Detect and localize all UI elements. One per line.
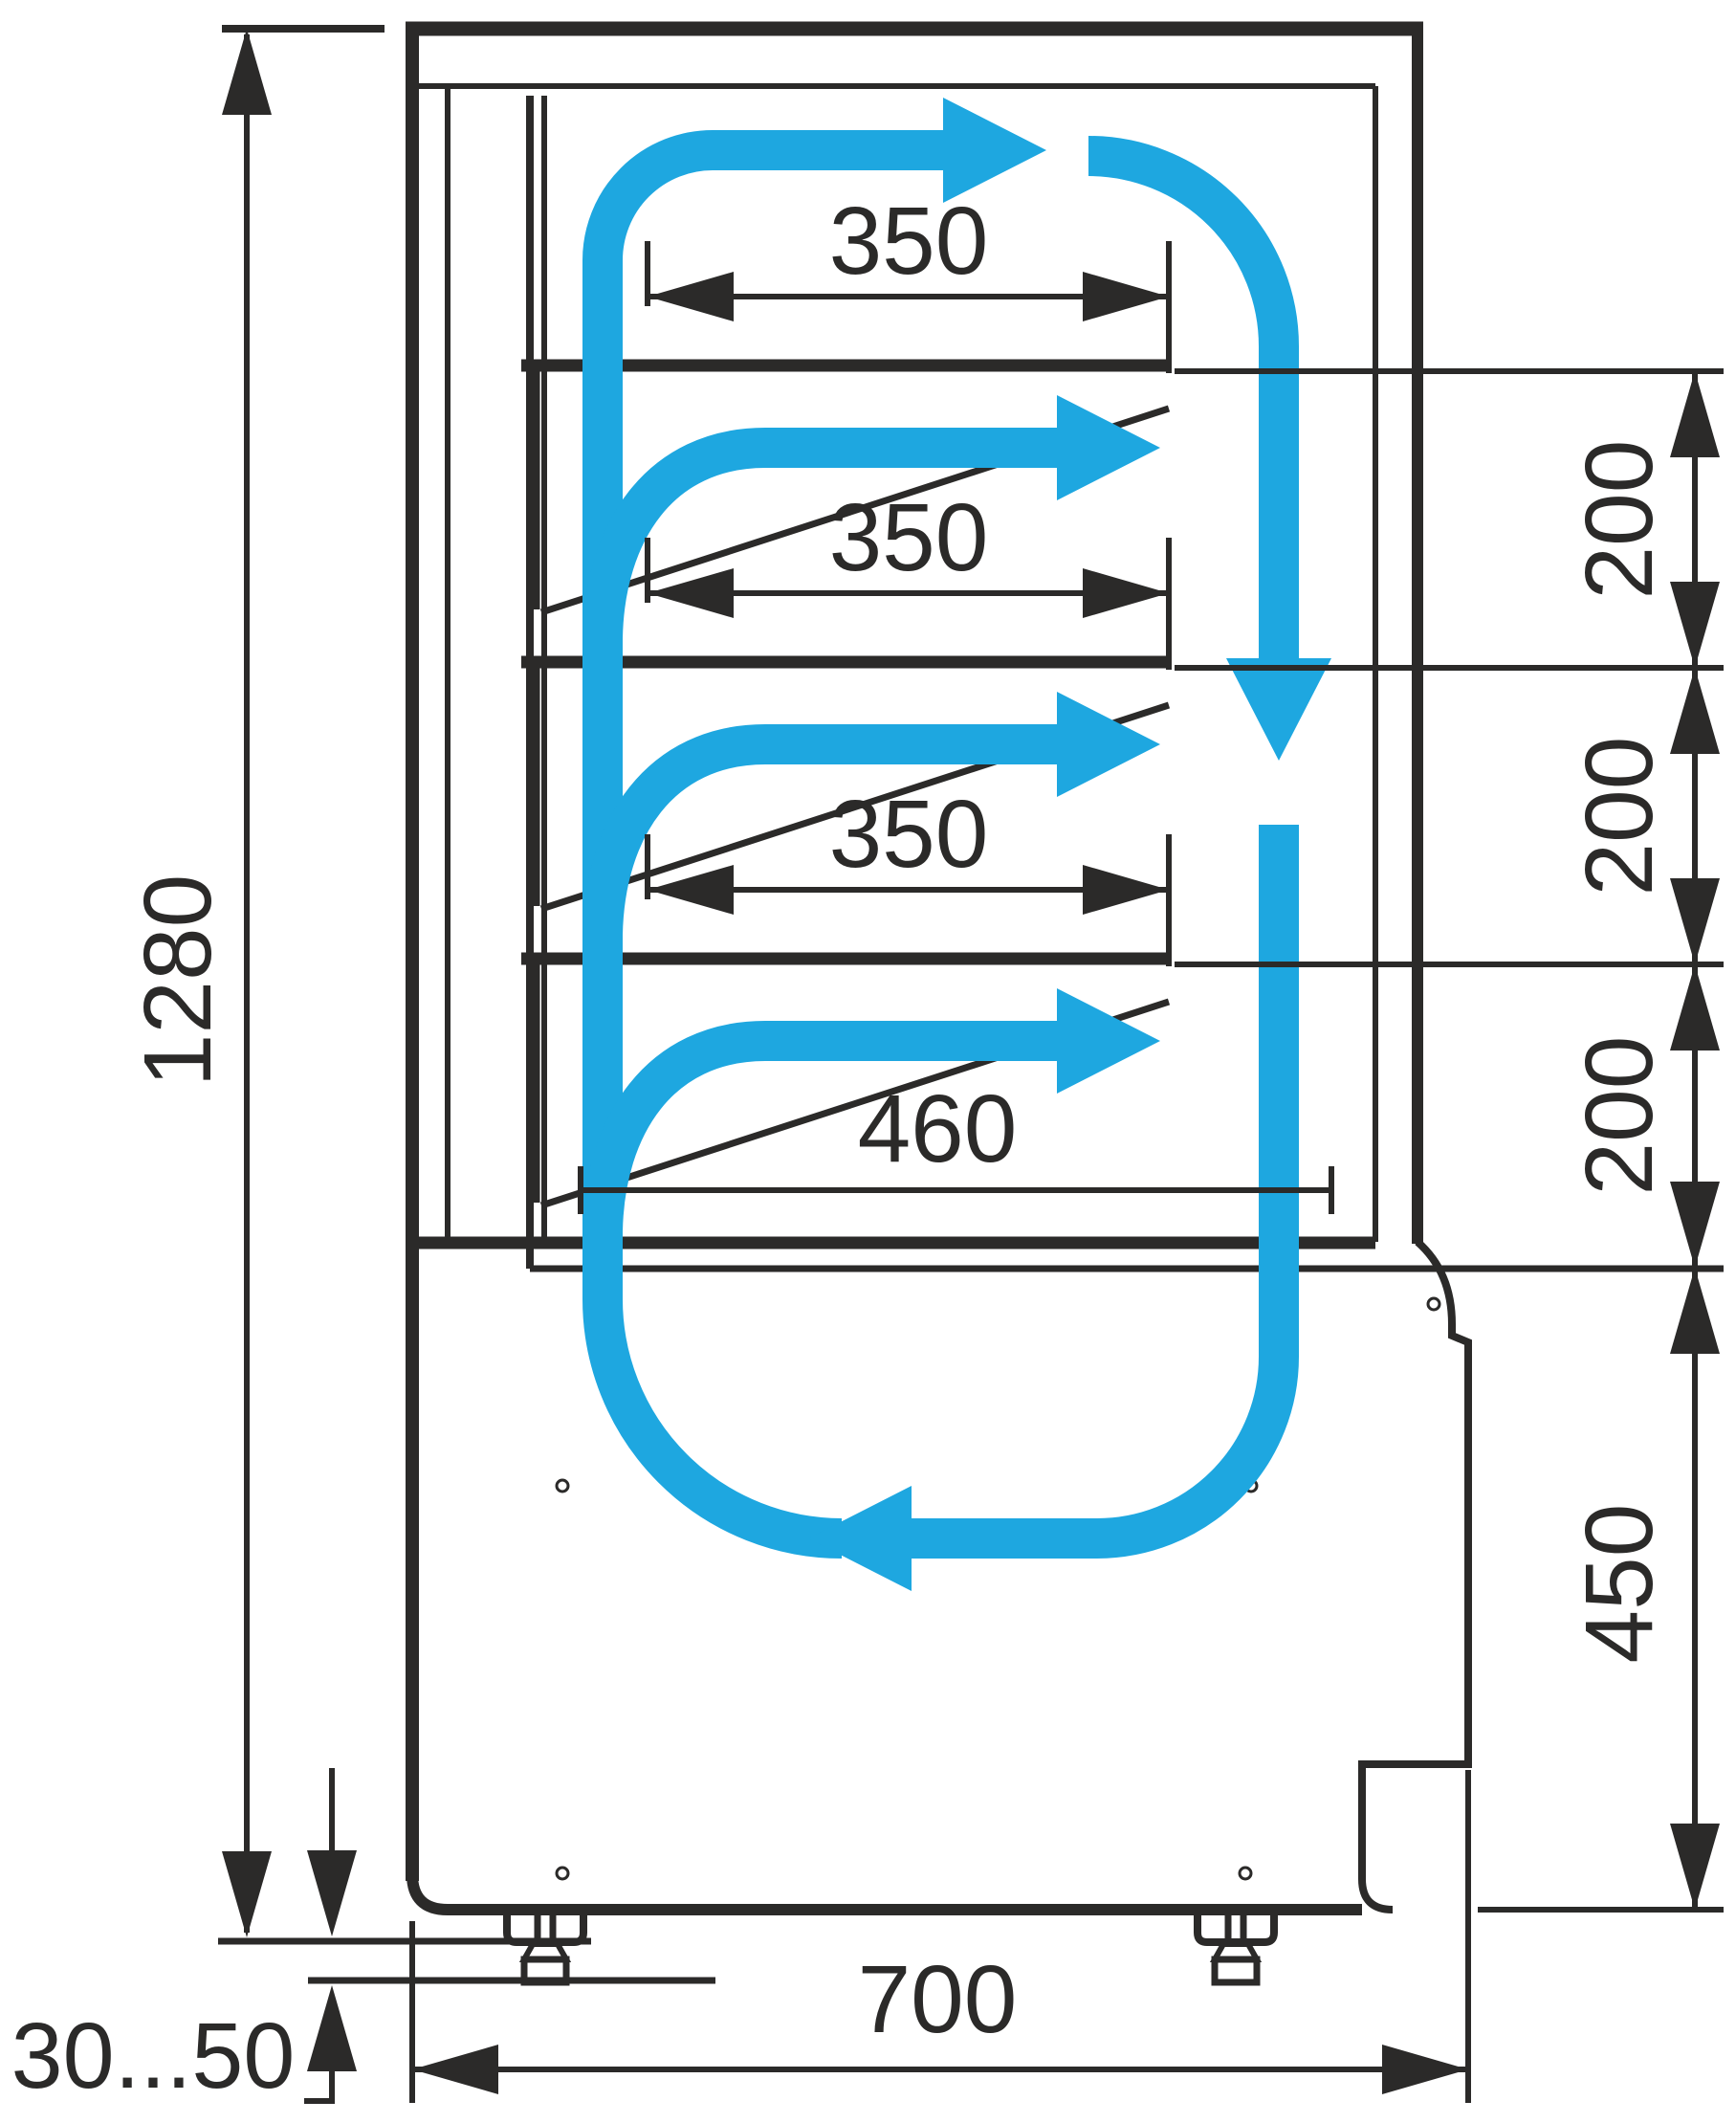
dim-1280-arrow-down-icon bbox=[222, 1851, 272, 1937]
leg-right bbox=[1198, 1910, 1274, 1982]
dim-350-3-label: 350 bbox=[829, 781, 989, 888]
dim-200-1-arrow-down-icon bbox=[1670, 582, 1720, 668]
dim-200-3-label: 200 bbox=[1566, 1036, 1673, 1196]
base-right-outline bbox=[1362, 1242, 1468, 1910]
airflow-arrowhead-branch-3-icon bbox=[1057, 988, 1160, 1094]
dim-depth-700: 700 bbox=[412, 1770, 1468, 2103]
dim-3050-arrow-up-icon bbox=[307, 1985, 357, 2071]
base-screw-hole bbox=[1240, 1868, 1251, 1879]
dim-shelf-350-1: 350 bbox=[648, 188, 1169, 373]
dim-450-arrow-up-icon bbox=[1670, 1268, 1720, 1354]
dim-350-2-arrow-right-icon bbox=[1083, 568, 1169, 618]
dim-deck-460: 460 bbox=[581, 1075, 1331, 1214]
dim-200-3-arrow-down-icon bbox=[1670, 1182, 1720, 1268]
dim-3050-arrow-down-icon bbox=[307, 1850, 357, 1936]
dim-1280-arrow-up-icon bbox=[222, 29, 272, 115]
base-body bbox=[412, 1242, 1468, 1910]
base-screw-hole bbox=[1428, 1298, 1439, 1310]
dim-1280-label: 1280 bbox=[124, 874, 231, 1087]
display-case-diagram: 1280 350 350 350 460 bbox=[0, 0, 1736, 2123]
dim-700-arrow-left-icon bbox=[412, 2045, 498, 2094]
dim-200-1-arrow-up-icon bbox=[1670, 371, 1720, 457]
dim-350-1-arrow-left-icon bbox=[648, 272, 734, 321]
dim-shelf-350-2: 350 bbox=[648, 484, 1169, 670]
dim-700-arrow-right-icon bbox=[1382, 2045, 1468, 2094]
dim-shelf-350-3: 350 bbox=[648, 781, 1169, 966]
leg-right-foot-pad bbox=[1215, 1959, 1257, 1982]
dim-200-3-arrow-up-icon bbox=[1670, 964, 1720, 1050]
dim-350-1-label: 350 bbox=[829, 188, 989, 295]
base-left-bottom-outline bbox=[412, 1874, 1362, 1910]
airflow-arrowhead-bottom-left-icon bbox=[808, 1486, 912, 1591]
dim-450-arrow-down-icon bbox=[1670, 1824, 1720, 1910]
dim-3050-label: 30...50 bbox=[11, 2003, 296, 2108]
dim-gaps-200: 200 200 200 bbox=[1175, 371, 1724, 1268]
dim-350-1-arrow-right-icon bbox=[1083, 272, 1169, 321]
dim-350-2-label: 350 bbox=[829, 484, 989, 591]
leg-left bbox=[507, 1910, 583, 1982]
dim-700-label: 700 bbox=[858, 1946, 1018, 2053]
dim-200-2-arrow-down-icon bbox=[1670, 878, 1720, 964]
dim-450-label: 450 bbox=[1566, 1504, 1673, 1664]
dim-overall-height: 1280 bbox=[124, 29, 385, 1937]
dim-200-1-label: 200 bbox=[1566, 440, 1673, 600]
airflow-arrowhead-branch-1-icon bbox=[1057, 395, 1160, 500]
technical-drawing-page: 1280 350 350 350 460 bbox=[0, 0, 1736, 2123]
dim-base-450: 450 bbox=[1478, 1268, 1724, 1910]
dim-200-2-label: 200 bbox=[1566, 737, 1673, 896]
dim-3050-leader bbox=[304, 2067, 332, 2101]
airflow-arrowhead-down-icon bbox=[1226, 658, 1331, 761]
base-screw-hole bbox=[557, 1480, 568, 1492]
dim-200-2-arrow-up-icon bbox=[1670, 668, 1720, 754]
base-screw-hole bbox=[557, 1868, 568, 1879]
dim-350-3-arrow-right-icon bbox=[1083, 865, 1169, 915]
dim-460-label: 460 bbox=[858, 1075, 1018, 1183]
airflow-arrowhead-branch-2-icon bbox=[1057, 692, 1160, 797]
